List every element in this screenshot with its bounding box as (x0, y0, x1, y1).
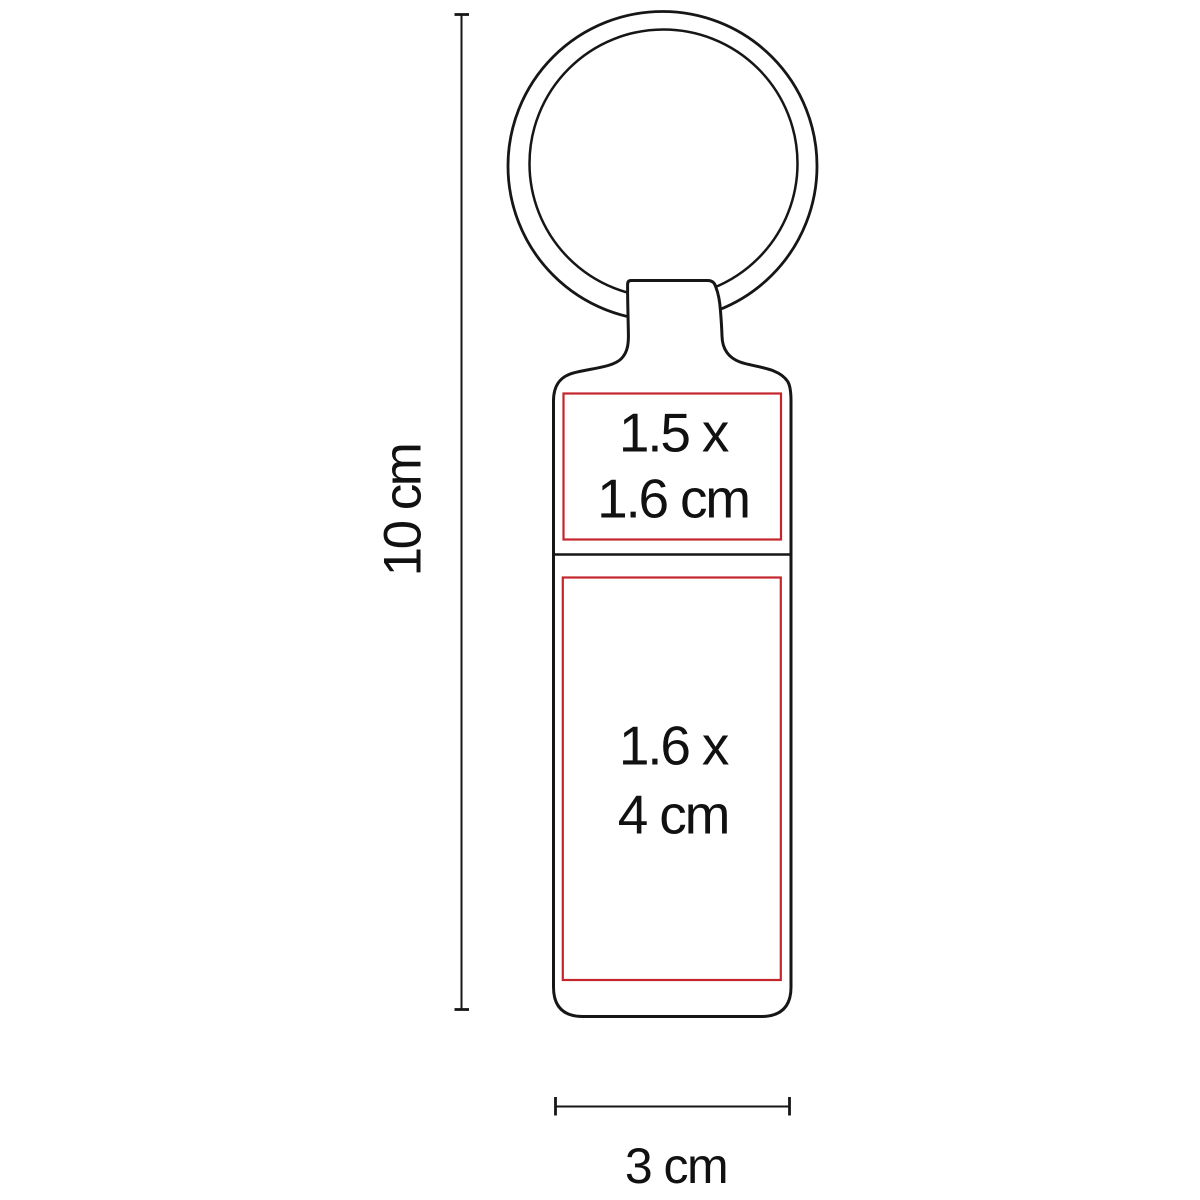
svg-text:3 cm: 3 cm (625, 1138, 727, 1194)
svg-text:4 cm: 4 cm (618, 784, 728, 846)
svg-text:1.5 x: 1.5 x (619, 402, 729, 464)
svg-text:10 cm: 10 cm (374, 445, 433, 577)
svg-text:1.6 x: 1.6 x (619, 715, 729, 777)
svg-text:1.6 cm: 1.6 cm (597, 468, 749, 530)
